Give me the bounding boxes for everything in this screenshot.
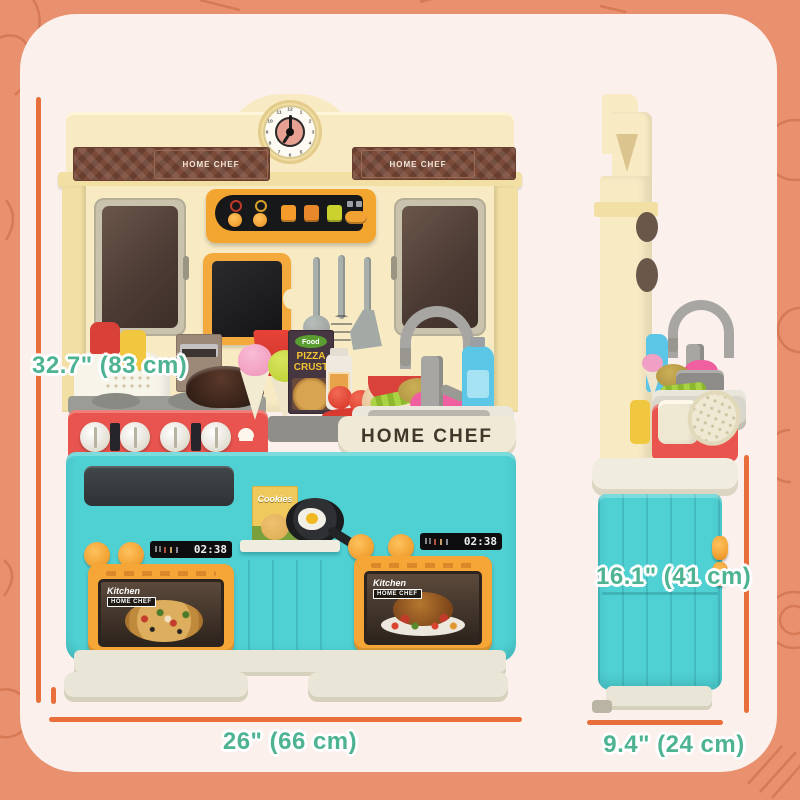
left-oven-badge: Kitchen HOME CHEF bbox=[107, 587, 156, 607]
side-knob-1 bbox=[712, 536, 728, 560]
side-lower-cabinet bbox=[598, 494, 722, 690]
side-caster bbox=[592, 700, 612, 713]
right-oven-badge-line1: Kitchen bbox=[373, 579, 422, 588]
side-mustard-bottle bbox=[630, 400, 650, 444]
depth-dimension-label: 9.4" (24 cm) bbox=[585, 731, 763, 759]
left-oven-badge-line1: Kitchen bbox=[107, 587, 156, 596]
height-dimension-label: 32.7" (83 cm) bbox=[32, 352, 187, 380]
kitchen-side-view bbox=[0, 0, 800, 760]
right-oven-badge-line2: HOME CHEF bbox=[373, 589, 422, 599]
left-oven-badge-line2: HOME CHEF bbox=[107, 597, 156, 607]
side-cabinet-split-line bbox=[602, 592, 718, 595]
width-dimension-line bbox=[49, 717, 522, 722]
width-dimension-tick bbox=[51, 687, 56, 704]
side-counter-slab bbox=[592, 458, 738, 496]
depth-dimension-line bbox=[587, 720, 723, 725]
right-oven-badge: Kitchen HOME CHEF bbox=[373, 579, 422, 599]
product-dimension-graphic: 121234567891011 HOME CHEF HOME CHEF bbox=[0, 0, 800, 800]
side-base bbox=[606, 686, 712, 710]
side-door-edge-1 bbox=[636, 212, 658, 242]
side-door-edge-2 bbox=[636, 258, 658, 292]
width-dimension-label: 26" (66 cm) bbox=[155, 728, 425, 756]
height-dimension-line bbox=[36, 97, 41, 703]
side-height-dimension-label: 16.1" (41 cm) bbox=[596, 563, 751, 591]
side-faucet-spout bbox=[668, 338, 678, 352]
